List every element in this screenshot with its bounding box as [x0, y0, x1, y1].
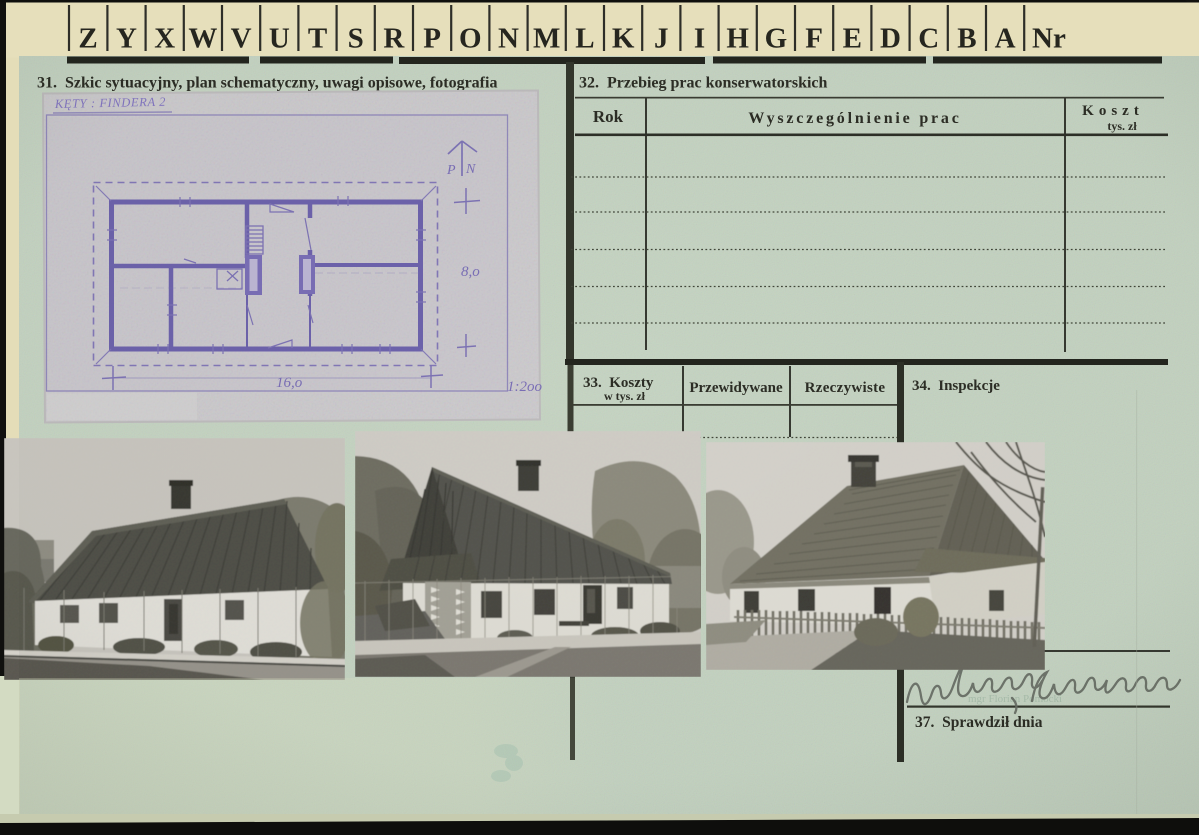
svg-text:F: F [805, 23, 823, 55]
svg-text:Nr: Nr [1032, 23, 1066, 55]
svg-text:W: W [188, 23, 217, 55]
svg-text:E: E [843, 23, 862, 55]
svg-text:P: P [423, 23, 441, 55]
svg-text:J: J [654, 23, 669, 55]
svg-text:I: I [694, 23, 705, 55]
svg-text:O: O [459, 23, 482, 55]
svg-text:T: T [308, 23, 327, 55]
svg-text:G: G [765, 23, 788, 55]
svg-text:H: H [726, 23, 749, 55]
svg-text:D: D [880, 23, 901, 55]
svg-text:Y: Y [116, 23, 137, 55]
svg-text:K: K [612, 23, 635, 55]
svg-text:R: R [383, 23, 405, 55]
svg-text:A: A [995, 23, 1016, 55]
svg-text:N: N [498, 23, 519, 55]
svg-text:U: U [269, 23, 290, 55]
svg-text:B: B [957, 23, 976, 55]
svg-text:Z: Z [78, 23, 97, 55]
svg-text:X: X [154, 23, 175, 55]
svg-text:S: S [348, 23, 364, 55]
svg-text:C: C [918, 23, 939, 55]
svg-text:M: M [533, 23, 560, 55]
svg-text:V: V [231, 23, 252, 55]
svg-text:L: L [575, 23, 594, 55]
